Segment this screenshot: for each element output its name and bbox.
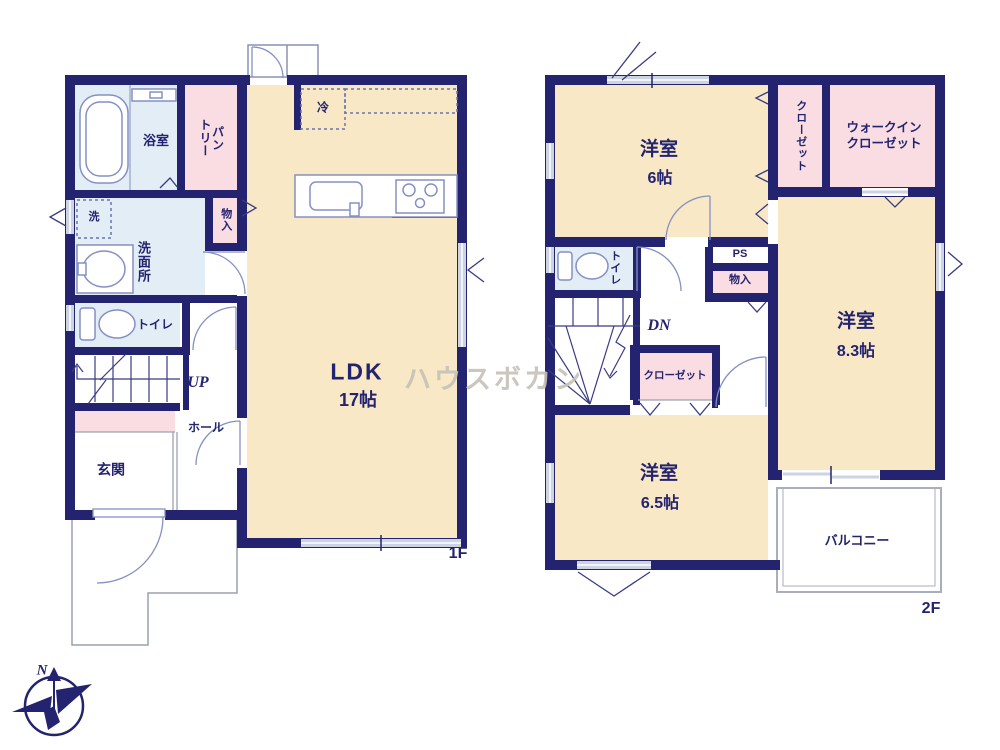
label-stairs-down: DN (647, 316, 670, 336)
room-label-entrance: 玄関 (97, 461, 125, 479)
room-label-bath: 浴室 (143, 133, 169, 149)
room-label-balcony: バルコニー (825, 533, 890, 549)
room-label-toilet-1f: トイレ (137, 318, 173, 333)
watermark-text: ハウスボカン (404, 358, 584, 397)
floor2-fixtures (558, 252, 608, 280)
room-label-pantry: パン トリー (198, 119, 223, 158)
room-label-walkin-closet: ウォークイン クローゼット (846, 120, 921, 151)
floor2-tag: 2F (922, 599, 941, 619)
room-label-room6-size: 6帖 (648, 169, 673, 189)
room-label-room6: 洋室 (640, 138, 678, 162)
room-label-storage-1f: 物入 (219, 208, 231, 232)
label-fridge: 冷 (317, 101, 329, 116)
toilet-fixture-1f (80, 308, 95, 340)
room-label-storage-2f: 物入 (729, 274, 751, 288)
label-laundry: 洗 (89, 211, 100, 225)
room-label-ldk-size: 17帖 (339, 389, 377, 412)
label-ps: PS (733, 248, 748, 262)
toilet-fixture-2f (558, 252, 572, 280)
floor1-tag: 1F (449, 544, 468, 564)
label-stairs-up: UP (187, 373, 208, 393)
room-label-hall: ホール (188, 421, 224, 436)
room-label-closet-vertical: クローゼット (794, 100, 806, 172)
room-label-toilet-2f: トイレ (608, 250, 620, 286)
room-label-washroom: 洗面所 (136, 241, 150, 283)
room-label-room83-size: 8.3帖 (837, 342, 875, 362)
room-label-room65: 洋室 (640, 462, 678, 486)
compass-icon (12, 667, 92, 735)
room-label-closet-2f: クローゼット (644, 369, 707, 382)
floorplan-canvas: 浴室 パン トリー 洗 洗面所 物入 トイレ UP ホール 玄関 LDK 17帖… (0, 0, 1000, 750)
room-label-room65-size: 6.5帖 (641, 494, 679, 514)
floor1-room-fills (75, 85, 457, 538)
floor1-stairs (72, 354, 180, 404)
room-label-ldk: LDK (330, 358, 383, 387)
room-label-room83: 洋室 (837, 310, 875, 334)
compass-north-label: N (37, 662, 48, 681)
